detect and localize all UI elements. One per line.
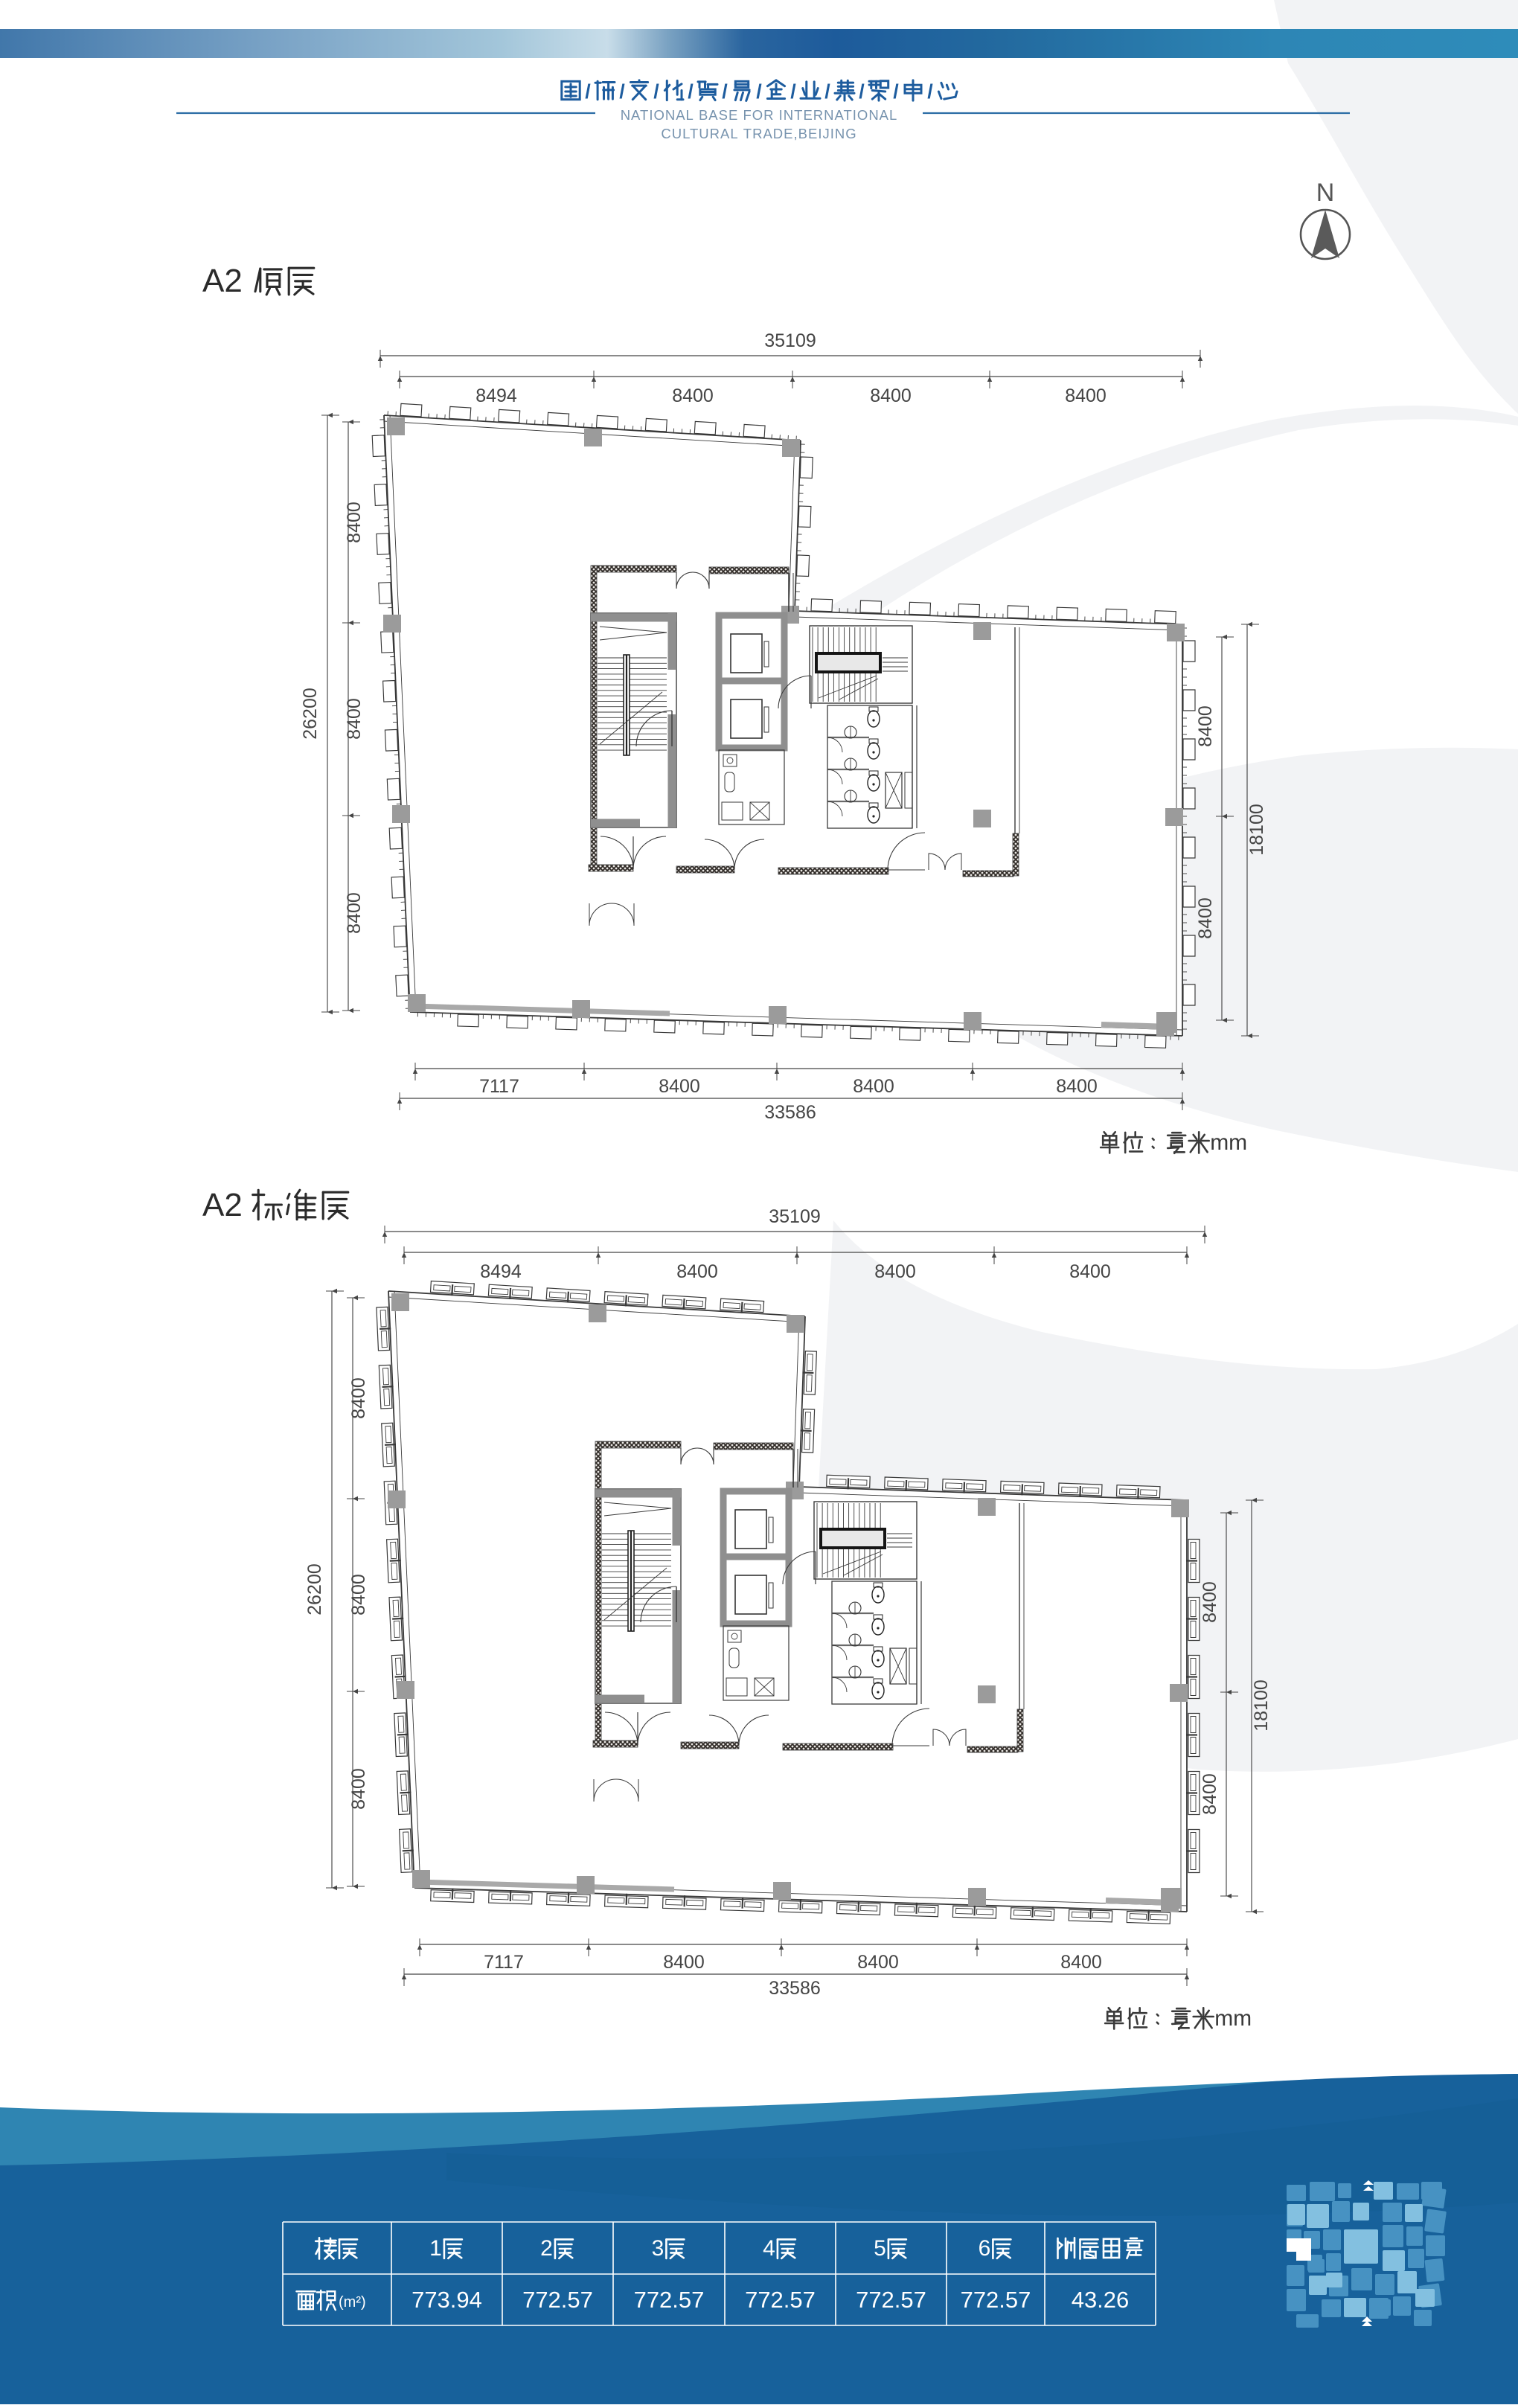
svg-text:/: / bbox=[859, 80, 865, 103]
svg-text:/: / bbox=[927, 80, 933, 103]
svg-text:8400: 8400 bbox=[1200, 1773, 1220, 1815]
svg-text:CULTURAL TRADE,BEIJING: CULTURAL TRADE,BEIJING bbox=[661, 126, 856, 141]
svg-text:8400: 8400 bbox=[672, 385, 714, 406]
svg-text:18100: 18100 bbox=[1246, 804, 1267, 856]
svg-text:8400: 8400 bbox=[344, 892, 365, 934]
svg-text:33586: 33586 bbox=[769, 1978, 821, 1999]
svg-text:26200: 26200 bbox=[300, 688, 321, 740]
svg-text:35109: 35109 bbox=[769, 1206, 821, 1227]
svg-text:(m²): (m²) bbox=[339, 2294, 366, 2311]
svg-text:1: 1 bbox=[429, 2236, 442, 2261]
svg-text:mm: mm bbox=[1210, 1130, 1247, 1155]
svg-text:/: / bbox=[619, 80, 625, 103]
svg-text:773.94: 773.94 bbox=[411, 2287, 482, 2313]
svg-text:8400: 8400 bbox=[1069, 1261, 1111, 1282]
svg-text:4: 4 bbox=[763, 2236, 775, 2261]
svg-text:7117: 7117 bbox=[479, 1076, 519, 1097]
svg-text:A2: A2 bbox=[202, 1187, 243, 1223]
svg-text:35109: 35109 bbox=[764, 330, 816, 351]
svg-text:8400: 8400 bbox=[874, 1261, 916, 1282]
svg-text:/: / bbox=[585, 80, 591, 103]
svg-text:8400: 8400 bbox=[348, 1574, 369, 1616]
svg-text:18100: 18100 bbox=[1251, 1679, 1272, 1732]
svg-text:8400: 8400 bbox=[1060, 1952, 1102, 1973]
svg-text:8494: 8494 bbox=[475, 385, 517, 406]
svg-text:772.57: 772.57 bbox=[961, 2287, 1031, 2313]
svg-text:/: / bbox=[824, 80, 830, 103]
svg-text:772.57: 772.57 bbox=[522, 2287, 593, 2313]
svg-text:/: / bbox=[688, 80, 694, 103]
svg-text:/: / bbox=[722, 80, 728, 103]
svg-text:8400: 8400 bbox=[1200, 1581, 1220, 1623]
svg-text:772.57: 772.57 bbox=[634, 2287, 705, 2313]
svg-text:772.57: 772.57 bbox=[745, 2287, 816, 2313]
svg-text:A2: A2 bbox=[202, 263, 243, 299]
svg-text:8400: 8400 bbox=[1195, 897, 1216, 939]
svg-text:6: 6 bbox=[979, 2236, 991, 2261]
svg-text:772.57: 772.57 bbox=[856, 2287, 926, 2313]
svg-text:N: N bbox=[1316, 179, 1335, 207]
svg-text:8494: 8494 bbox=[480, 1261, 522, 1282]
svg-text:2: 2 bbox=[540, 2236, 553, 2261]
svg-text:8400: 8400 bbox=[1065, 385, 1107, 406]
svg-text:8400: 8400 bbox=[348, 1377, 369, 1419]
svg-text:NATIONAL BASE FOR INTERNATIONA: NATIONAL BASE FOR INTERNATIONAL bbox=[621, 107, 898, 123]
svg-text:/: / bbox=[893, 80, 899, 103]
svg-text:8400: 8400 bbox=[853, 1076, 894, 1097]
svg-text:8400: 8400 bbox=[344, 502, 365, 543]
svg-text:mm: mm bbox=[1214, 2006, 1252, 2031]
svg-text:43.26: 43.26 bbox=[1072, 2287, 1130, 2313]
svg-text:/: / bbox=[653, 80, 659, 103]
svg-text:/: / bbox=[756, 80, 762, 103]
svg-text:33586: 33586 bbox=[764, 1102, 816, 1123]
svg-text:8400: 8400 bbox=[663, 1952, 705, 1973]
svg-text:8400: 8400 bbox=[870, 385, 912, 406]
svg-text:8400: 8400 bbox=[344, 698, 365, 740]
svg-text:3: 3 bbox=[652, 2236, 664, 2261]
svg-text:8400: 8400 bbox=[857, 1952, 899, 1973]
svg-text:8400: 8400 bbox=[1195, 705, 1216, 747]
svg-text:8400: 8400 bbox=[348, 1768, 369, 1810]
svg-text:26200: 26200 bbox=[304, 1563, 325, 1616]
svg-text:8400: 8400 bbox=[676, 1261, 718, 1282]
svg-text:8400: 8400 bbox=[659, 1076, 700, 1097]
svg-text:/: / bbox=[790, 80, 796, 103]
svg-text:5: 5 bbox=[874, 2236, 886, 2261]
svg-text:7117: 7117 bbox=[484, 1952, 524, 1973]
svg-text:8400: 8400 bbox=[1056, 1076, 1098, 1097]
